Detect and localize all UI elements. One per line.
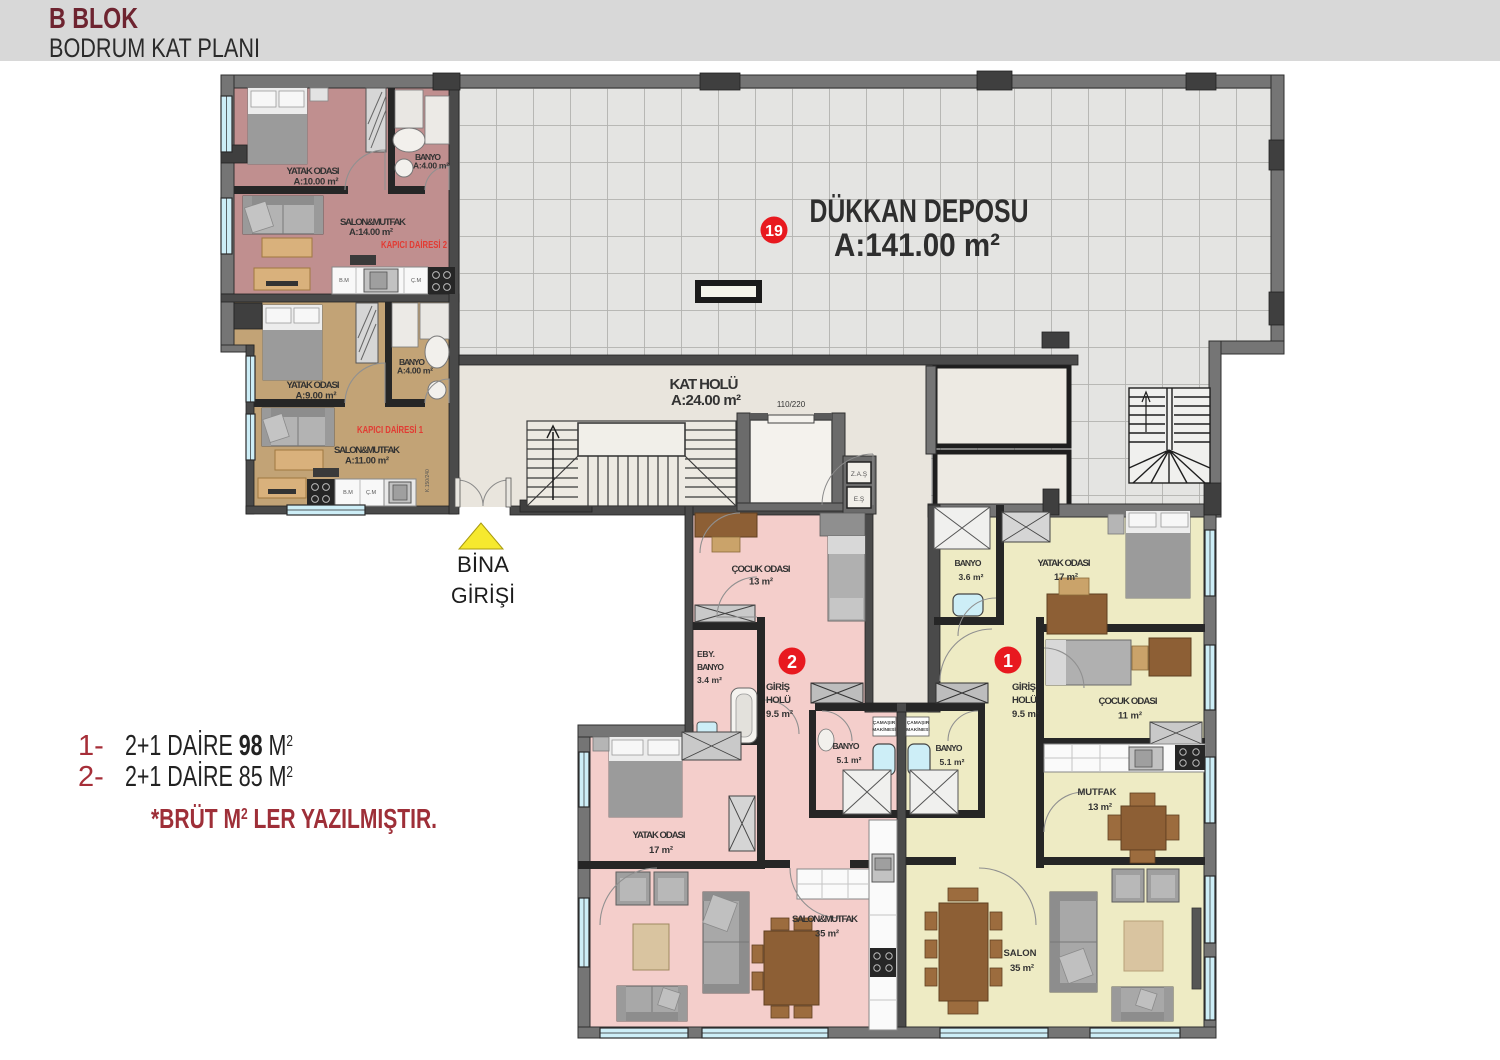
svg-text:5.1 m²: 5.1 m² <box>940 757 965 767</box>
svg-text:MUTFAK: MUTFAK <box>1078 787 1117 798</box>
svg-text:*BRÜT M2 LER YAZILMIŞTIR.: *BRÜT M2 LER YAZILMIŞTIR. <box>151 803 437 834</box>
svg-text:BANYO: BANYO <box>697 662 724 672</box>
svg-text:3.6 m²: 3.6 m² <box>959 572 984 582</box>
svg-text:EBY.: EBY. <box>697 649 715 659</box>
svg-text:3.4 m²: 3.4 m² <box>697 675 722 685</box>
svg-text:19: 19 <box>765 223 783 240</box>
svg-text:17 m²: 17 m² <box>1054 572 1078 583</box>
svg-text:KAPICI DAİRESİ 2: KAPICI DAİRESİ 2 <box>381 238 447 251</box>
svg-text:Z.A.Ş: Z.A.Ş <box>851 471 868 478</box>
svg-text:SALON&MUTFAK: SALON&MUTFAK <box>334 445 400 456</box>
svg-text:35 m²: 35 m² <box>815 929 839 940</box>
svg-text:110/220: 110/220 <box>777 400 806 409</box>
svg-text:A:4.00 m²: A:4.00 m² <box>413 161 449 171</box>
svg-text:9.5 m²: 9.5 m² <box>766 709 793 720</box>
svg-text:B BLOK: B BLOK <box>49 3 138 35</box>
svg-text:GİRİŞ: GİRİŞ <box>766 682 790 693</box>
svg-text:KAT HOLÜ: KAT HOLÜ <box>670 376 739 393</box>
svg-text:A:141.00 m²: A:141.00 m² <box>834 227 1000 263</box>
svg-text:A:10.00 m²: A:10.00 m² <box>294 177 339 188</box>
svg-text:17 m²: 17 m² <box>649 845 673 856</box>
svg-text:11 m²: 11 m² <box>1118 711 1142 722</box>
svg-text:GİRİŞ: GİRİŞ <box>1012 682 1036 693</box>
svg-text:BANYO: BANYO <box>833 741 860 751</box>
svg-text:ÇAMAŞIR: ÇAMAŞIR <box>873 720 896 726</box>
svg-text:A:14.00 m²: A:14.00 m² <box>349 227 393 238</box>
svg-text:ÇOCUK ODASI: ÇOCUK ODASI <box>1099 696 1158 707</box>
svg-text:HOLÜ: HOLÜ <box>1012 695 1037 706</box>
svg-text:A:4.00 m²: A:4.00 m² <box>397 366 433 376</box>
svg-text:ÇOCUK ODASI: ÇOCUK ODASI <box>732 564 791 575</box>
svg-text:B.M: B.M <box>339 278 349 284</box>
svg-text:K.150/240: K.150/240 <box>425 469 431 492</box>
svg-text:YATAK ODASI: YATAK ODASI <box>287 166 340 177</box>
svg-text:13 m²: 13 m² <box>749 577 773 588</box>
svg-text:A:9.00 m²: A:9.00 m² <box>296 391 337 402</box>
svg-text:Ç.M: Ç.M <box>366 490 377 496</box>
svg-text:ÇAMAŞIR: ÇAMAŞIR <box>907 720 930 726</box>
svg-text:2-: 2- <box>78 761 104 793</box>
svg-text:DÜKKAN DEPOSU: DÜKKAN DEPOSU <box>810 193 1029 229</box>
svg-text:MAKİNESİ: MAKİNESİ <box>906 726 930 733</box>
svg-text:BANYO: BANYO <box>936 743 963 753</box>
svg-text:2: 2 <box>787 652 797 672</box>
svg-text:1-: 1- <box>78 730 104 762</box>
svg-text:2+1 DAİRE 85 M2: 2+1 DAİRE 85 M2 <box>125 760 293 793</box>
svg-text:GİRİŞİ: GİRİŞİ <box>451 583 515 608</box>
svg-text:35 m²: 35 m² <box>1010 963 1034 974</box>
svg-text:2+1 DAİRE 98 M2: 2+1 DAİRE 98 M2 <box>125 729 293 762</box>
svg-text:9.5 m²: 9.5 m² <box>1012 709 1039 720</box>
svg-text:Ç.M: Ç.M <box>411 278 422 284</box>
svg-text:5.1 m²: 5.1 m² <box>837 755 862 765</box>
svg-text:SALON: SALON <box>1004 948 1037 959</box>
svg-text:YATAK ODASI: YATAK ODASI <box>287 380 340 391</box>
svg-text:SALON&MUTFAK: SALON&MUTFAK <box>792 914 858 925</box>
svg-text:YATAK ODASI: YATAK ODASI <box>1038 558 1091 569</box>
svg-text:BANYO: BANYO <box>955 558 982 568</box>
svg-text:BİNA: BİNA <box>457 552 509 577</box>
svg-text:KAPICI DAİRESİ 1: KAPICI DAİRESİ 1 <box>357 423 423 436</box>
svg-text:13 m²: 13 m² <box>1088 802 1112 813</box>
svg-text:1: 1 <box>1003 651 1013 671</box>
svg-text:BODRUM KAT PLANI: BODRUM KAT PLANI <box>49 33 260 63</box>
svg-text:E.Ş: E.Ş <box>854 496 865 503</box>
svg-text:HOLÜ: HOLÜ <box>766 695 791 706</box>
svg-text:A:11.00 m²: A:11.00 m² <box>345 456 389 467</box>
svg-text:YATAK ODASI: YATAK ODASI <box>633 830 686 841</box>
svg-text:A:24.00 m²: A:24.00 m² <box>671 392 741 409</box>
svg-text:MAKİNESİ: MAKİNESİ <box>872 726 896 733</box>
svg-text:B.M: B.M <box>343 490 353 496</box>
